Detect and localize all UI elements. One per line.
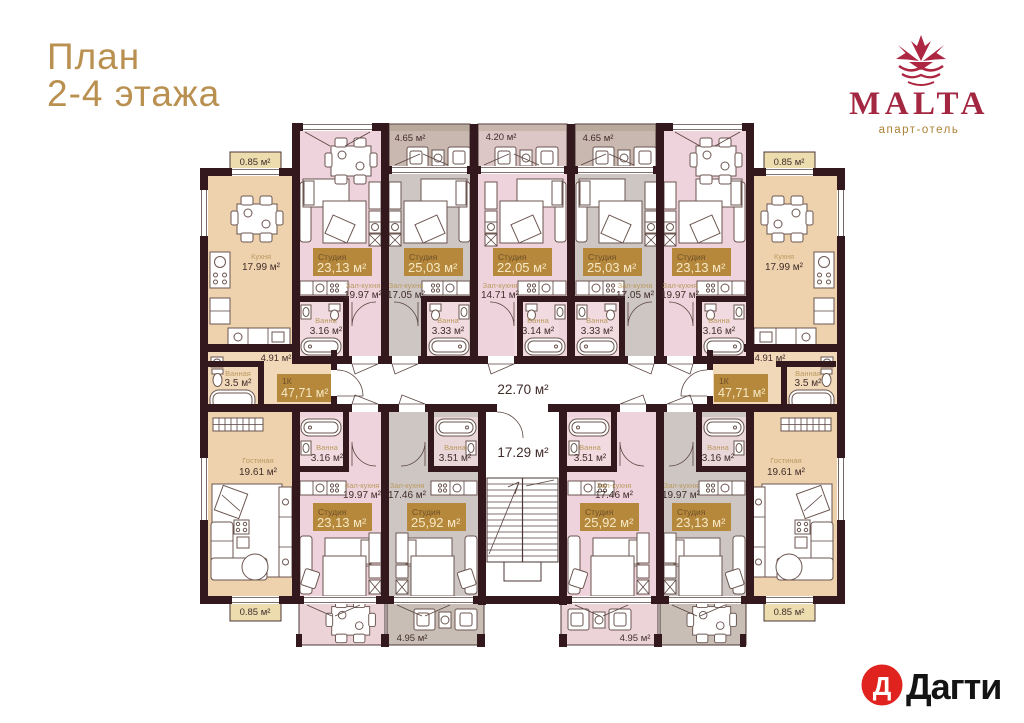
svg-text:3.16 м²: 3.16 м² — [310, 326, 343, 337]
svg-text:25,92 м²: 25,92 м² — [411, 515, 461, 530]
svg-text:19.61 м²: 19.61 м² — [239, 467, 278, 478]
svg-text:17.99 м²: 17.99 м² — [242, 262, 281, 273]
svg-text:19.97 м²: 19.97 м² — [344, 290, 383, 301]
svg-text:1К: 1К — [282, 376, 292, 386]
svg-text:Ванна: Ванна — [316, 443, 338, 452]
svg-text:25,92 м²: 25,92 м² — [584, 515, 634, 530]
svg-text:19.97 м²: 19.97 м² — [343, 490, 382, 501]
svg-text:22,05 м²: 22,05 м² — [497, 260, 547, 275]
svg-text:3.51 м²: 3.51 м² — [439, 453, 472, 464]
svg-text:Зал-кухня: Зал-кухня — [663, 281, 698, 290]
svg-text:3.33 м²: 3.33 м² — [432, 326, 465, 337]
svg-text:Ванна: Ванна — [444, 443, 466, 452]
svg-text:Ванна: Ванна — [437, 316, 459, 325]
svg-text:3.5 м²: 3.5 м² — [225, 378, 253, 389]
svg-text:19.97 м²: 19.97 м² — [662, 490, 701, 501]
svg-text:Д: Д — [873, 671, 892, 701]
svg-text:Ванна: Ванна — [707, 443, 729, 452]
svg-text:0.85 м²: 0.85 м² — [240, 607, 271, 618]
svg-text:Ванная: Ванная — [225, 369, 251, 378]
svg-text:Зал-кухня: Зал-кухня — [346, 281, 381, 290]
svg-text:апарт-отель: апарт-отель — [879, 124, 960, 136]
svg-text:17.99 м²: 17.99 м² — [765, 262, 804, 273]
svg-text:4.65 м²: 4.65 м² — [583, 133, 614, 144]
svg-text:25,03 м²: 25,03 м² — [587, 260, 637, 275]
svg-text:4.91 м²: 4.91 м² — [755, 353, 786, 364]
svg-text:Гостиная: Гостиная — [770, 456, 801, 465]
svg-text:3.16 м²: 3.16 м² — [702, 453, 735, 464]
svg-text:23,13 м²: 23,13 м² — [676, 515, 726, 530]
svg-text:Гостиная: Гостиная — [242, 456, 273, 465]
svg-text:17.46 м²: 17.46 м² — [595, 490, 634, 501]
svg-text:23,13 м²: 23,13 м² — [317, 260, 367, 275]
svg-text:17.05 м²: 17.05 м² — [616, 290, 655, 301]
svg-text:Ванна: Ванна — [586, 316, 608, 325]
svg-text:47,71 м²: 47,71 м² — [281, 386, 329, 400]
svg-text:4.20 м²: 4.20 м² — [486, 132, 517, 143]
svg-text:47,71 м²: 47,71 м² — [718, 386, 766, 400]
svg-text:Ванная: Ванная — [795, 369, 821, 378]
svg-text:Ванна: Ванна — [579, 443, 601, 452]
svg-text:Зал-кухня: Зал-кухня — [618, 281, 653, 290]
svg-text:Зал-кухня: Зал-кухня — [664, 481, 699, 490]
svg-text:17.05 м²: 17.05 м² — [387, 290, 426, 301]
svg-text:23,13 м²: 23,13 м² — [317, 515, 367, 530]
svg-text:Зал-кухня: Зал-кухня — [597, 481, 632, 490]
svg-text:3.5 м²: 3.5 м² — [795, 378, 823, 389]
svg-text:22.70 м²: 22.70 м² — [497, 382, 549, 397]
svg-text:3.51 м²: 3.51 м² — [574, 453, 607, 464]
svg-text:Ванна: Ванна — [708, 316, 730, 325]
svg-text:4.91 м²: 4.91 м² — [261, 353, 292, 364]
svg-text:17.29 м²: 17.29 м² — [497, 445, 549, 460]
svg-text:1К: 1К — [719, 376, 729, 386]
svg-text:0.85 м²: 0.85 м² — [240, 157, 271, 168]
svg-text:3.14 м²: 3.14 м² — [522, 326, 555, 337]
svg-text:Кухня: Кухня — [251, 252, 271, 261]
svg-text:Зал-кухня: Зал-кухня — [345, 481, 380, 490]
svg-text:25,03 м²: 25,03 м² — [408, 260, 458, 275]
svg-text:3.33 м²: 3.33 м² — [581, 326, 614, 337]
svg-text:План: План — [47, 36, 140, 77]
svg-text:Зал-кухня: Зал-кухня — [483, 281, 518, 290]
svg-text:3.16 м²: 3.16 м² — [703, 326, 736, 337]
svg-text:4.65 м²: 4.65 м² — [395, 133, 426, 144]
svg-text:19.61 м²: 19.61 м² — [767, 467, 806, 478]
svg-text:Зал-кухня: Зал-кухня — [389, 281, 424, 290]
svg-text:4.95 м²: 4.95 м² — [620, 633, 651, 644]
svg-text:4.95 м²: 4.95 м² — [397, 633, 428, 644]
svg-text:2-4 этажа: 2-4 этажа — [47, 73, 220, 114]
svg-text:3.16 м²: 3.16 м² — [311, 453, 344, 464]
svg-text:Зал-кухня: Зал-кухня — [390, 481, 425, 490]
svg-text:0.85 м²: 0.85 м² — [774, 157, 805, 168]
svg-text:23,13 м²: 23,13 м² — [676, 260, 726, 275]
svg-text:0.85 м²: 0.85 м² — [774, 607, 805, 618]
svg-text:Кухня: Кухня — [774, 252, 794, 261]
svg-text:MALTA: MALTA — [849, 86, 989, 122]
svg-text:17.46 м²: 17.46 м² — [388, 490, 427, 501]
svg-text:Ванна: Ванна — [315, 316, 337, 325]
svg-text:Дагти: Дагти — [906, 666, 1001, 707]
svg-text:14.71 м²: 14.71 м² — [481, 290, 520, 301]
svg-text:19.97 м²: 19.97 м² — [661, 290, 700, 301]
svg-text:Ванна: Ванна — [527, 316, 549, 325]
